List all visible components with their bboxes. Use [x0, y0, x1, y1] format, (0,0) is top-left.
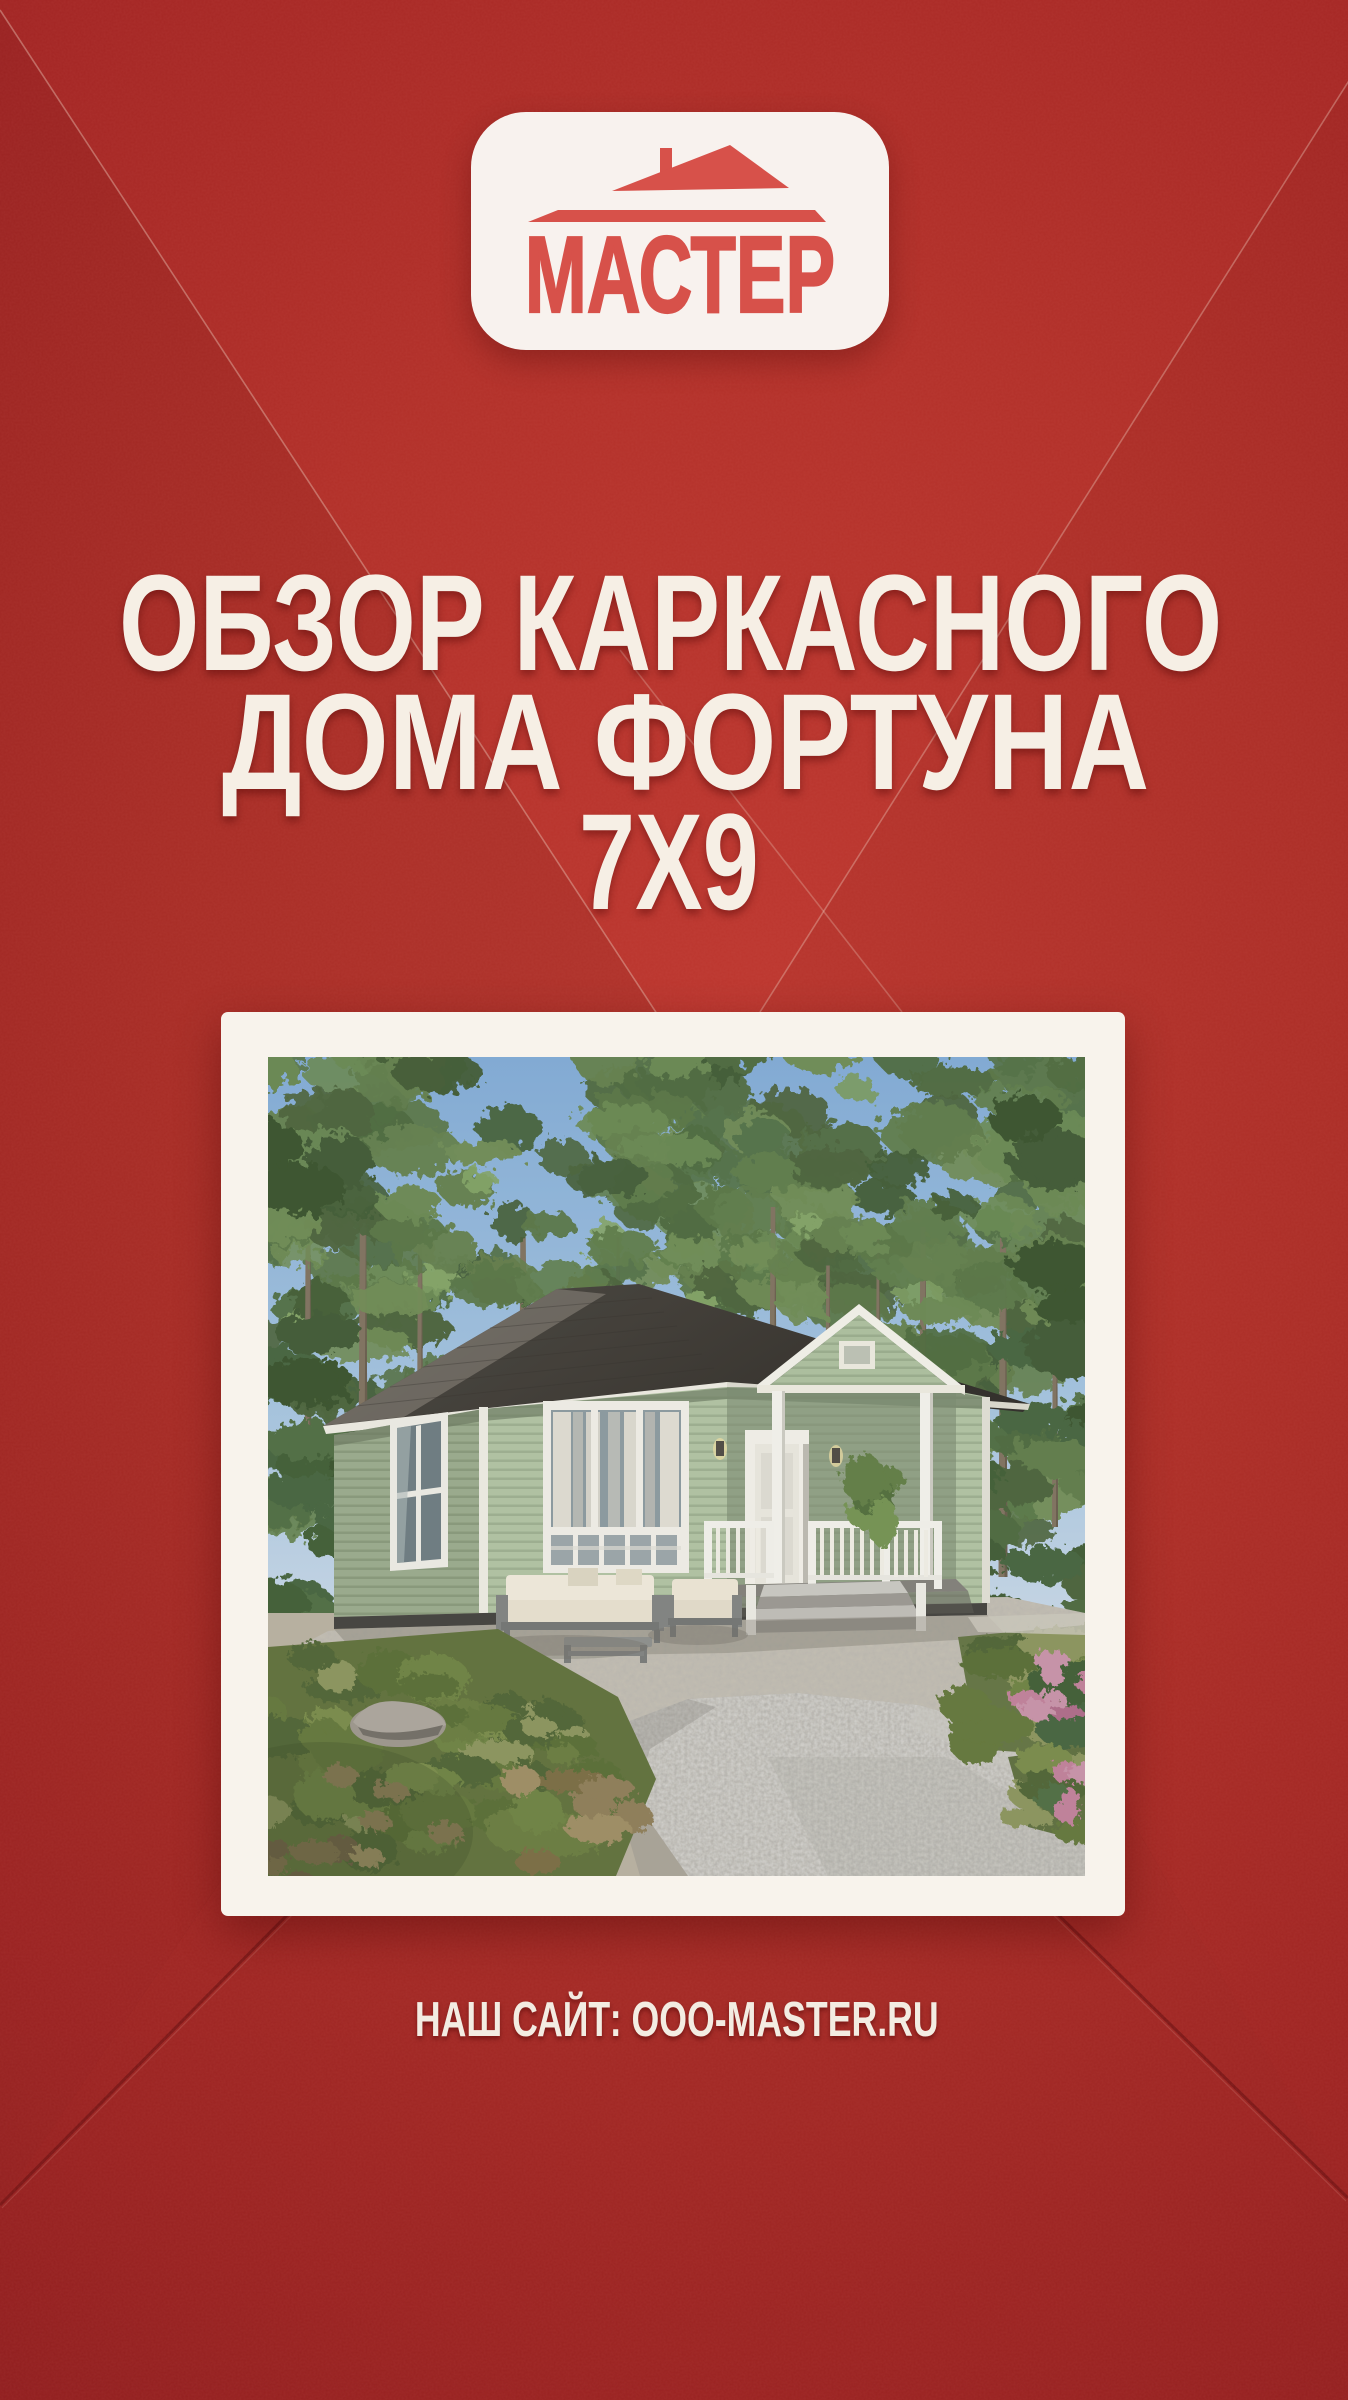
svg-text:МАСТЕР: МАСТЕР — [525, 214, 835, 336]
